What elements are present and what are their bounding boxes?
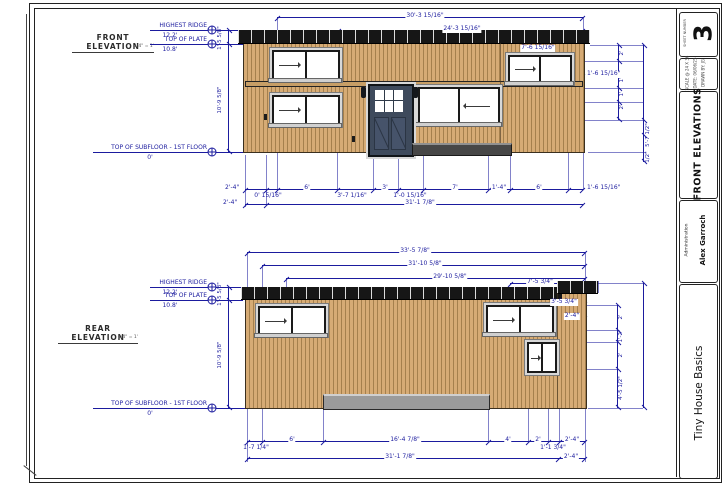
ridge-level-label: HIGHEST RIDGE <box>92 22 207 29</box>
ridge-level-marker-icon <box>208 283 217 292</box>
front-wall-joint <box>500 43 501 152</box>
slide-right-arrow-icon <box>279 110 298 111</box>
plate-level-marker-icon <box>208 296 217 305</box>
door-glass-panes <box>375 90 403 112</box>
door-panel <box>391 117 406 150</box>
dim-label: 1'-5 5/8" <box>217 281 223 307</box>
rear-window-right <box>486 305 554 334</box>
front-window-lower-left <box>272 95 340 125</box>
dim-label: 2' <box>619 103 625 110</box>
dim-label: 3'-5 3/4" <box>550 299 578 306</box>
dim-label: 3' <box>381 185 388 192</box>
client-name: Alex Garroch <box>699 215 707 266</box>
window-mullion <box>539 56 541 82</box>
dim-label: 31'-1 7/8" <box>384 454 416 461</box>
window-sill <box>268 78 342 83</box>
company-name: Tiny House Basics <box>693 346 705 441</box>
wall-sconce-light-icon <box>413 87 418 98</box>
dim-label: 30'-3 15/16" <box>405 13 444 20</box>
dim-label: 2' <box>534 437 541 444</box>
dim-label: 2'-4" <box>224 185 240 192</box>
extension-line <box>510 155 511 189</box>
dim-label: 2'-4" <box>222 200 238 207</box>
rear-roof-raised <box>557 281 598 294</box>
dim-line <box>245 189 583 190</box>
slide-right-arrow-icon <box>531 358 538 359</box>
slide-right-arrow-icon <box>515 69 533 70</box>
dim-label: 10'-9 5/8" <box>217 340 223 369</box>
dim-line-vertical <box>643 45 644 162</box>
dim-label: 5'-7 1/2" <box>645 122 651 148</box>
floor-level-label: TOP OF SUBFLOOR - 1ST FLOOR <box>68 400 207 407</box>
front-entry-step <box>412 143 512 156</box>
extension-line <box>245 155 246 207</box>
slide-right-arrow-icon <box>279 65 298 66</box>
dim-label: 10'-9 5/8" <box>217 85 223 114</box>
dim-label: 2' <box>619 49 625 56</box>
window-sill <box>504 81 574 86</box>
dim-line <box>247 458 585 459</box>
plate-level-elevation: 10.8' <box>150 46 190 53</box>
dim-label: 1' <box>619 90 625 97</box>
sheet-number-label: SHEET NUMBER <box>683 19 687 47</box>
titleblock-divider <box>676 8 677 477</box>
extension-line <box>559 408 560 441</box>
page-edge-line <box>26 14 27 466</box>
dim-label: 2'-4" <box>564 313 580 320</box>
floor-level-marker-icon <box>208 148 217 157</box>
window-mullion <box>519 306 521 333</box>
dim-label: 7'-5 3/4" <box>526 279 554 286</box>
dim-label: 1'-2" <box>618 328 624 343</box>
sheet-number: 3 <box>689 24 718 41</box>
dim-label: 3'-7 1/16" <box>336 193 368 200</box>
slide-right-arrow-icon <box>265 321 284 322</box>
wall-fixture <box>352 136 355 142</box>
front-elevation-scale-note: 1/4" = 1' <box>72 44 154 49</box>
dim-label: 1'-7 1/4" <box>242 445 270 452</box>
sheet-title: FRONT ELEVATIONS <box>693 88 704 201</box>
window-sill <box>482 332 556 337</box>
slide-right-arrow-icon <box>493 320 512 321</box>
front-window-large <box>418 87 500 124</box>
dim-label: 16'-4 7/8" <box>389 437 421 444</box>
rear-skirt-panel <box>323 394 490 410</box>
front-roof <box>238 30 590 44</box>
dim-label: 2'-4" <box>563 454 579 461</box>
floor-level-marker-icon <box>208 404 217 413</box>
front-entry-door <box>368 84 414 157</box>
sheet-date: DATE: 06/06/25 <box>693 58 698 89</box>
rear-roof <box>241 287 562 300</box>
dim-label: 2' <box>618 351 624 358</box>
window-sill <box>254 333 328 338</box>
window-mullion <box>291 307 293 334</box>
dim-label: 1'-4" <box>491 185 507 192</box>
floor-level-elevation: 0' <box>130 154 170 161</box>
extension-line <box>590 45 643 46</box>
window-sill <box>414 122 502 127</box>
floor-level-line <box>93 152 243 153</box>
window-sill <box>268 123 342 128</box>
dim-label: 7'-6 15/16" <box>520 45 555 52</box>
front-window-right <box>508 55 572 83</box>
dim-label: 6' <box>303 185 310 192</box>
dim-label: 31'-10 5/8" <box>407 261 442 268</box>
front-window-upper-left <box>272 50 340 80</box>
dim-label: 0' 15/16" <box>253 193 282 200</box>
plate-level-label: TOP OF PLATE <box>92 36 207 43</box>
rear-window-small <box>527 342 557 373</box>
floor-level-label: TOP OF SUBFLOOR - 1ST FLOOR <box>68 144 207 151</box>
dim-label: 1' <box>619 76 625 83</box>
extension-line <box>247 408 248 462</box>
dim-label: 4'-5 1/2" <box>618 375 624 401</box>
dim-label: 7' <box>451 185 458 192</box>
rear-elevation-scale-note: 1/4" = 1' <box>58 335 138 340</box>
dim-label: 6' <box>535 185 542 192</box>
window-mullion <box>305 51 307 79</box>
sheet-scale: SCALE @ 24 X 36 <box>685 56 690 91</box>
extension-line <box>528 408 529 441</box>
dim-label: 1'-6 15/16" <box>586 71 621 78</box>
sheet-drawn-by: DRAWN BY: JG <box>701 59 706 87</box>
dim-label: 31'-1 7/8" <box>404 200 436 207</box>
dim-label: 24'-3 15/16" <box>442 26 481 33</box>
rear-elevation-title: REAR ELEVATION <box>58 324 138 344</box>
dim-label: 1'-1 3/4" <box>539 445 567 452</box>
extension-line <box>598 283 643 284</box>
dim-label: 1'-5 5/8" <box>217 25 223 51</box>
dim-line-vertical <box>228 30 229 152</box>
dim-label: 4' <box>504 437 511 444</box>
door-panel <box>374 117 389 150</box>
drawing-sheet: FRONT ELEVATION 1/4" = 1' HIGHEST RIDGE … <box>0 0 728 485</box>
dim-label: 29'-10 5/8" <box>432 274 467 281</box>
ridge-level-label: HIGHEST RIDGE <box>92 279 207 286</box>
floor-level-elevation: 0' <box>130 410 170 417</box>
plate-level-marker-icon <box>208 40 217 49</box>
slide-left-arrow-icon <box>466 106 490 107</box>
dim-label: 2' <box>618 313 624 320</box>
dim-label: 33'-5 7/8" <box>399 248 431 255</box>
client-role: Administration <box>685 224 690 257</box>
dim-label: 6' <box>288 437 295 444</box>
wall-sconce-light-icon <box>361 87 366 98</box>
ridge-level-marker-icon <box>208 26 217 35</box>
dim-label: 1/2" <box>645 150 651 163</box>
dim-line-vertical <box>228 287 229 408</box>
dim-line-vertical <box>643 283 644 408</box>
dim-label: 2'-4" <box>564 437 580 444</box>
extension-line <box>588 152 646 153</box>
extension-line <box>588 408 643 409</box>
plate-level-elevation: 10.8' <box>150 302 190 309</box>
dim-label: 1'-6 15/16" <box>586 185 621 192</box>
rear-window-left <box>258 306 326 335</box>
extension-line <box>247 252 248 287</box>
plate-level-label: TOP OF PLATE <box>92 292 207 299</box>
level-line <box>93 408 245 409</box>
extension-line <box>585 408 586 462</box>
rear-wall-joint <box>557 293 558 408</box>
window-mullion <box>305 96 307 124</box>
wall-fixture <box>264 114 267 120</box>
